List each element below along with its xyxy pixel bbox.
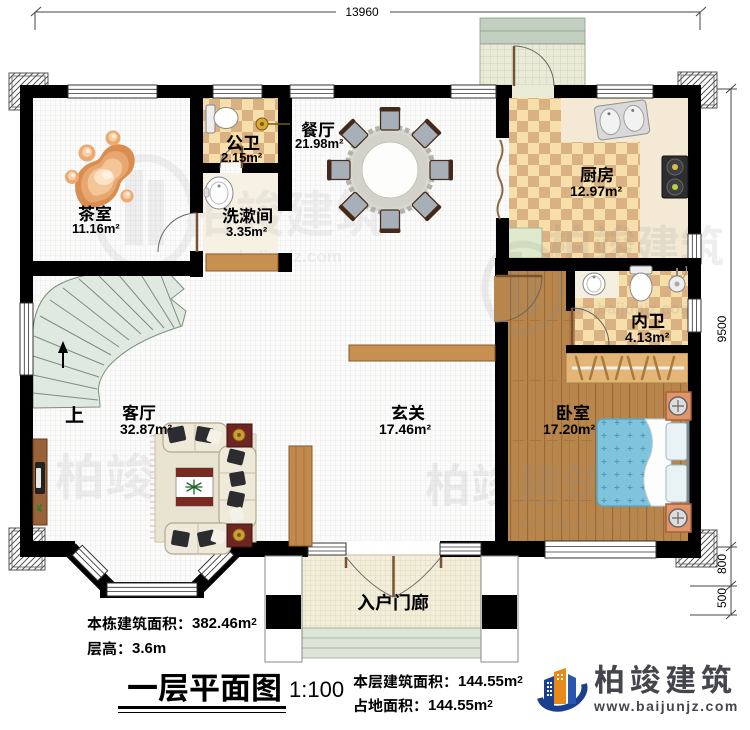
svg-text:9500: 9500	[715, 315, 729, 342]
svg-text:13960: 13960	[345, 5, 379, 19]
svg-text:500: 500	[715, 588, 729, 608]
svg-text:www.baijunjz.com: www.baijunjz.com	[555, 301, 694, 318]
